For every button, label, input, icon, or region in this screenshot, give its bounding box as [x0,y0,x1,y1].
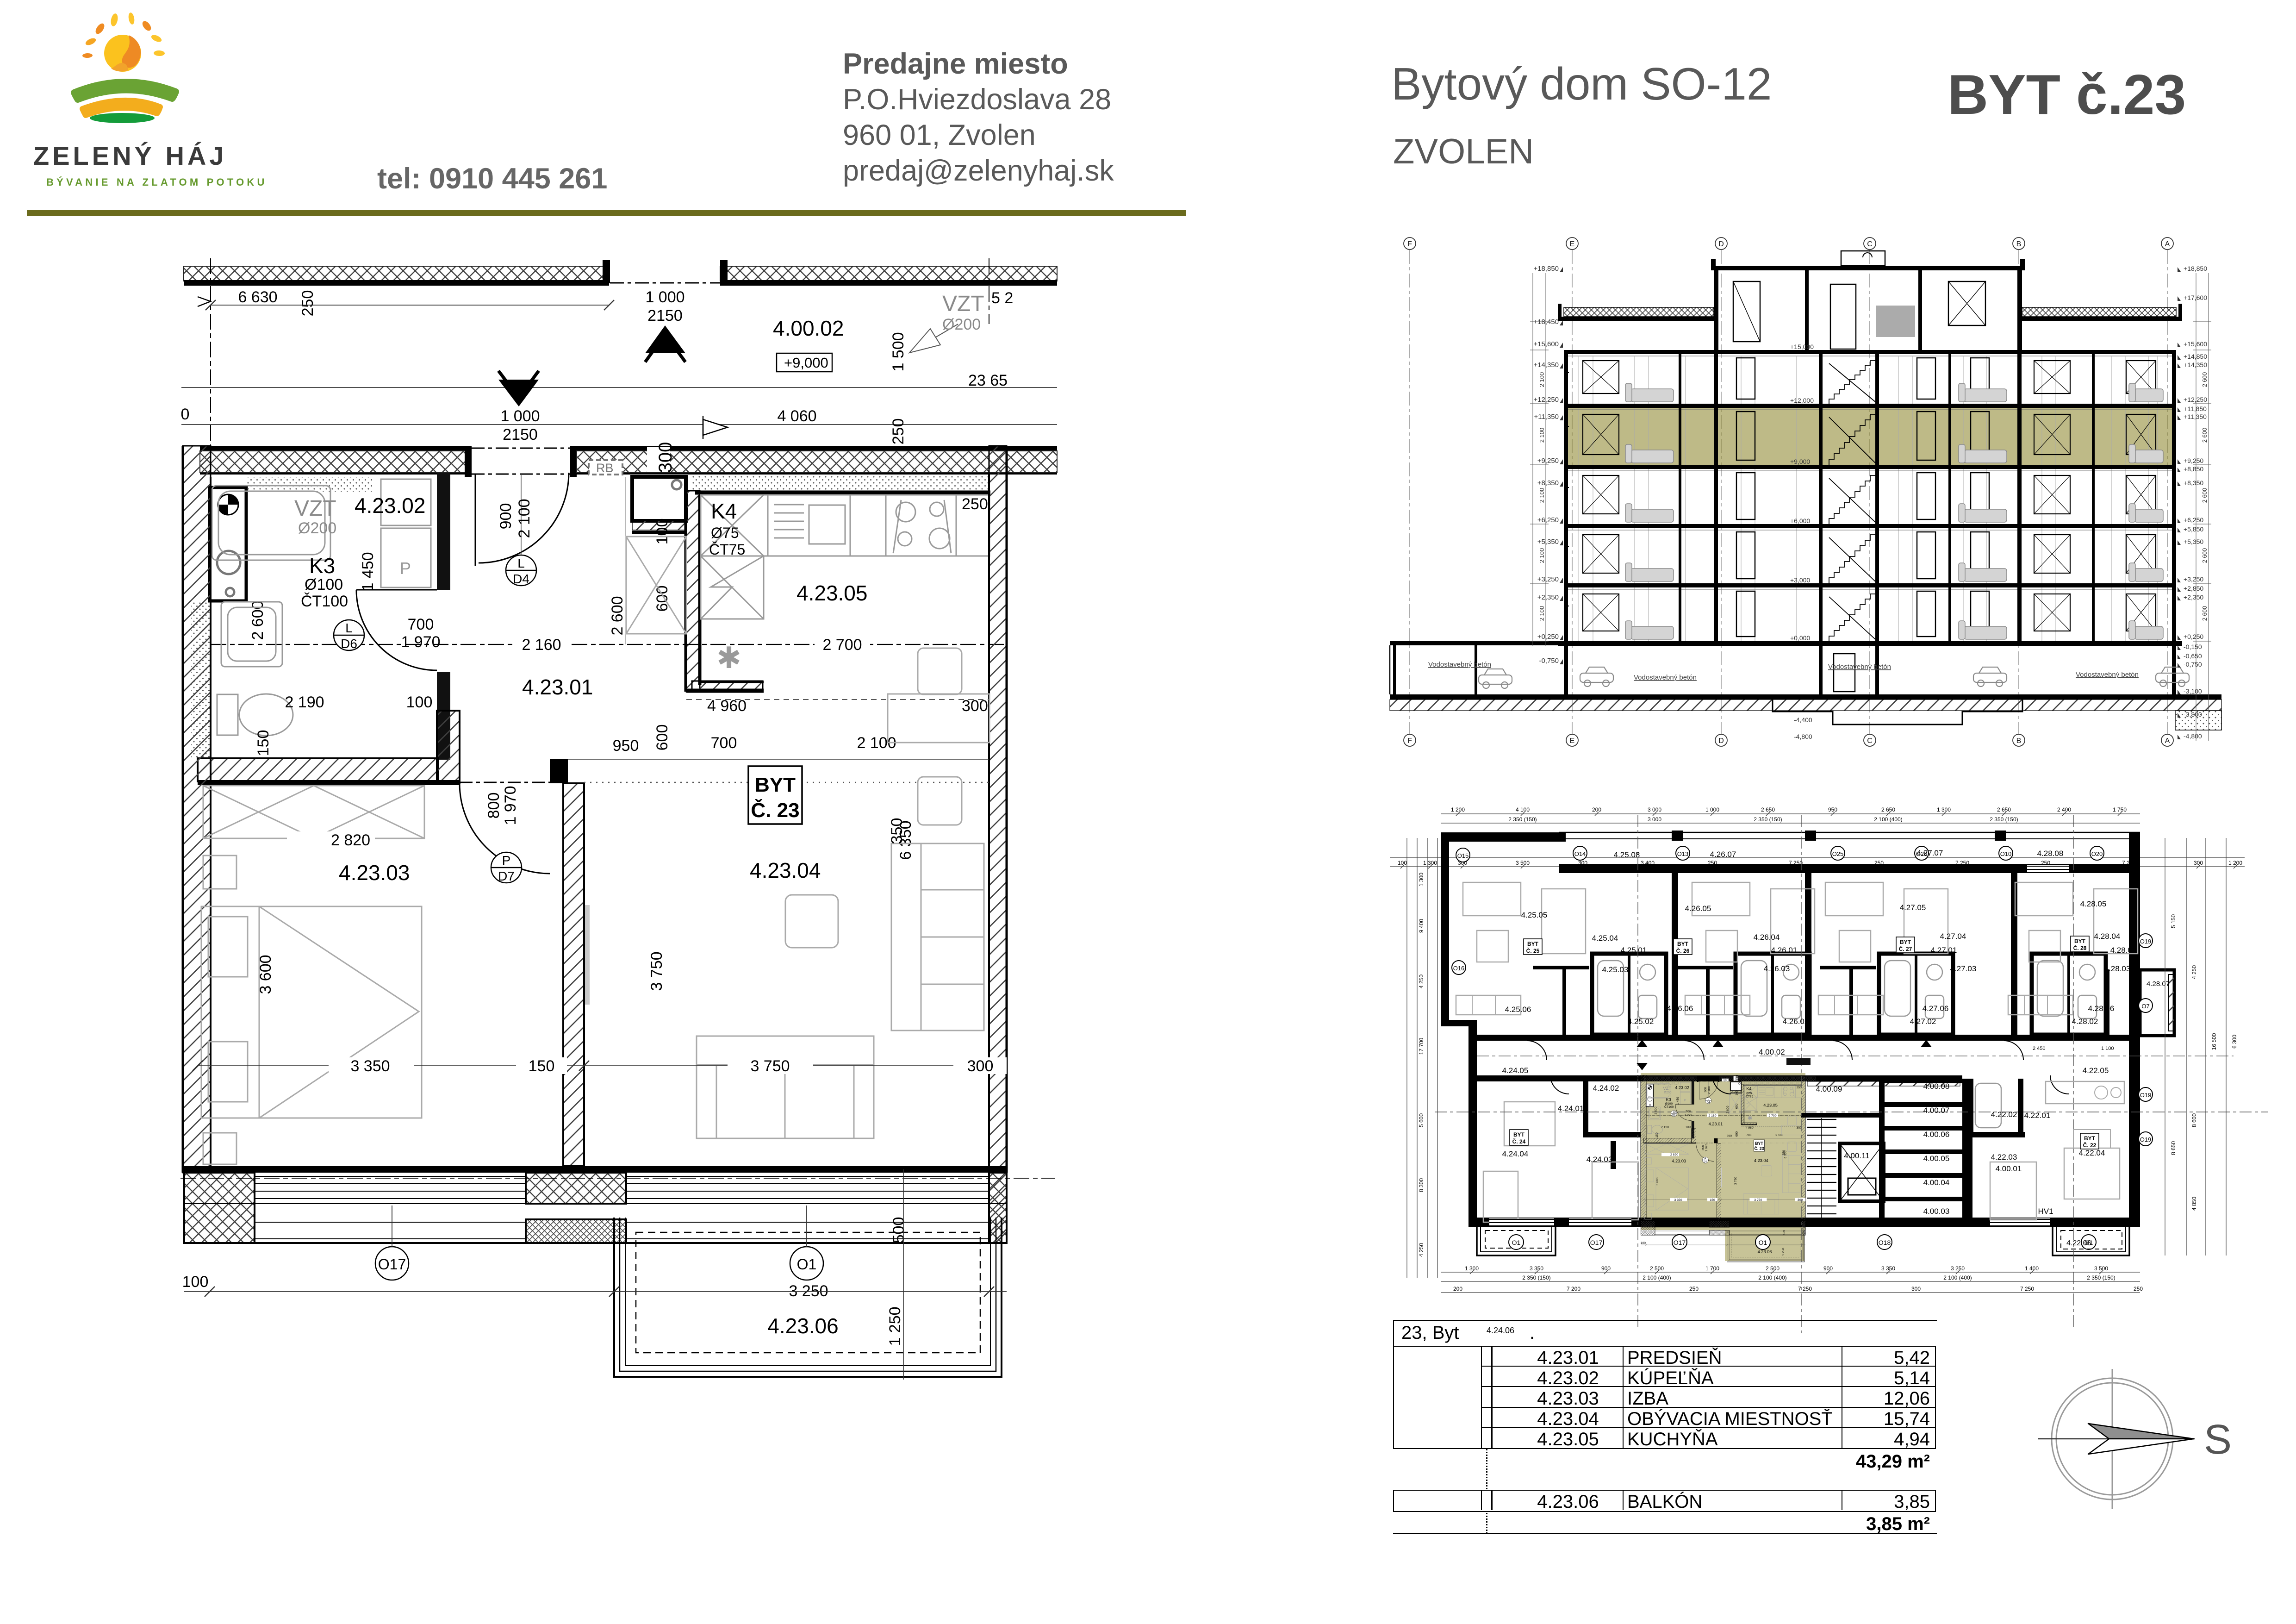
svg-text:2150: 2150 [503,426,538,443]
svg-text:16 500: 16 500 [2211,1033,2217,1050]
svg-text:Č. 23: Č. 23 [751,798,799,822]
svg-text:4.00.06: 4.00.06 [1923,1130,1950,1139]
svg-text:2 700: 2 700 [822,636,862,654]
svg-text:E: E [1570,737,1575,745]
svg-text:4.27.03: 4.27.03 [1950,964,1977,973]
svg-text:4.24.04: 4.24.04 [1502,1149,1529,1158]
svg-text:3 350: 3 350 [1530,1265,1543,1272]
svg-text:950: 950 [1828,806,1837,813]
svg-text:250: 250 [962,495,988,513]
svg-text:4.23.04: 4.23.04 [750,858,821,882]
svg-text:4.22.04: 4.22.04 [2079,1149,2105,1157]
svg-text:1 700: 1 700 [1705,1265,1719,1272]
svg-text:250: 250 [2134,1286,2143,1292]
svg-text:2 100: 2 100 [516,499,533,538]
svg-text:250: 250 [299,290,317,317]
svg-text:O18: O18 [1879,1239,1891,1246]
svg-text:4 060: 4 060 [777,407,816,425]
svg-text:B: B [2016,240,2022,248]
svg-text:D6: D6 [341,637,357,651]
svg-text:+2,350: +2,350 [1537,593,1559,601]
svg-text:1 000: 1 000 [645,288,684,306]
svg-text:8 600: 8 600 [2191,1113,2197,1127]
svg-text:2 450: 2 450 [2033,1046,2046,1051]
svg-text:2 350 (150): 2 350 (150) [1508,816,1537,823]
svg-text:4.26.03: 4.26.03 [1764,964,1790,973]
svg-text:O25: O25 [1832,850,1844,857]
svg-text:700: 700 [711,734,737,752]
svg-text:7 200: 7 200 [1567,1286,1580,1292]
svg-text:4.26.01: 4.26.01 [1771,946,1798,955]
svg-text:2 100: 2 100 [1538,606,1545,621]
svg-text:K3: K3 [309,554,335,578]
svg-text:D7: D7 [498,869,515,883]
svg-text:4.00.11: 4.00.11 [1844,1151,1869,1160]
svg-text:4.00.03: 4.00.03 [1923,1207,1950,1216]
svg-text:23 65: 23 65 [968,372,1008,389]
svg-text:5 600: 5 600 [1418,1113,1425,1127]
svg-text:O17: O17 [1590,1239,1603,1246]
svg-text:7 250: 7 250 [1798,1286,1812,1292]
svg-text:4.28.07: 4.28.07 [2147,980,2170,988]
svg-text:4.24.03: 4.24.03 [1587,1155,1613,1164]
svg-text:F: F [1407,240,1412,248]
svg-text:2 600: 2 600 [2201,606,2208,621]
svg-text:4.28.02: 4.28.02 [2072,1017,2098,1026]
svg-text:1 400: 1 400 [2025,1265,2039,1272]
svg-text:+6,250: +6,250 [2184,516,2203,524]
svg-text:1 450: 1 450 [359,552,377,591]
svg-text:3 250: 3 250 [1951,1265,1965,1272]
svg-text:4.25.03: 4.25.03 [1602,965,1629,974]
svg-text:Č. 28: Č. 28 [2073,944,2087,951]
svg-text:+0,250: +0,250 [1537,633,1559,641]
svg-text:4.27.05: 4.27.05 [1900,903,1926,912]
svg-text:BYT: BYT [2074,938,2086,944]
svg-text:7 250: 7 250 [2020,1286,2034,1292]
svg-text:3 350: 3 350 [350,1057,390,1075]
svg-text:Vodostavebný betón: Vodostavebný betón [2076,671,2139,679]
svg-text:O13: O13 [1677,850,1689,857]
svg-text:0: 0 [181,406,190,423]
svg-text:2150: 2150 [1636,1074,1648,1080]
svg-text:+5,850: +5,850 [2184,525,2203,533]
svg-text:4.00.09: 4.00.09 [1816,1085,1842,1093]
svg-text:O7: O7 [2141,1003,2149,1010]
svg-text:4.23.01: 4.23.01 [522,675,593,699]
svg-text:+11,850: +11,850 [2184,405,2207,412]
svg-text:4.25.05: 4.25.05 [1521,911,1548,919]
svg-text:4.22.02: 4.22.02 [1991,1110,2017,1119]
svg-text:Č. 27: Č. 27 [1899,945,1912,952]
svg-text:C: C [1867,240,1873,248]
svg-text:A: A [2165,737,2170,745]
svg-text:BYT: BYT [755,774,796,796]
svg-text:150: 150 [255,730,272,756]
svg-text:4.28.04: 4.28.04 [2094,932,2121,941]
svg-text:4.23.06: 4.23.06 [767,1314,838,1338]
svg-text:2 650: 2 650 [1881,806,1895,813]
svg-text:1 300: 1 300 [1937,806,1951,813]
svg-text:1 300: 1 300 [1465,1265,1479,1272]
svg-text:ČT100: ČT100 [301,593,348,610]
svg-text:O1: O1 [1512,1239,1521,1246]
svg-text:4.00.07: 4.00.07 [1923,1106,1950,1115]
svg-text:100: 100 [182,1273,209,1291]
svg-text:4 100: 4 100 [1516,806,1530,813]
svg-text:-3,800: -3,800 [2184,711,2202,718]
svg-text:2 650: 2 650 [1997,806,2011,813]
svg-text:4.27.02: 4.27.02 [1910,1017,1936,1026]
svg-text:2 400: 2 400 [2057,806,2071,813]
svg-text:+8,350: +8,350 [1537,479,1559,487]
svg-text:4.00.04: 4.00.04 [1923,1178,1950,1187]
svg-text:2 350 (150): 2 350 (150) [2087,1274,2115,1281]
svg-text:Vodostavebný betón: Vodostavebný betón [1428,661,1491,668]
svg-text:+15,600: +15,600 [2184,340,2207,348]
svg-text:4.28.03: 4.28.03 [2104,964,2131,973]
svg-text:2 100 (400): 2 100 (400) [1758,1274,1786,1281]
svg-text:HV1: HV1 [2038,1207,2053,1216]
svg-text:4.00.08: 4.00.08 [1923,1082,1950,1091]
svg-text:800: 800 [485,793,503,819]
svg-text:O1: O1 [797,1256,817,1273]
svg-text:4.24.01: 4.24.01 [1558,1104,1584,1113]
svg-text:4.28.05: 4.28.05 [2080,899,2107,908]
svg-text:O17: O17 [1674,1239,1686,1246]
svg-text:4.27.07: 4.27.07 [1917,849,1943,857]
svg-text:1 500: 1 500 [890,332,907,371]
svg-text:+0,250: +0,250 [2184,633,2203,640]
svg-text:BYT: BYT [1900,939,1911,945]
svg-text:4.22.05: 4.22.05 [2083,1066,2109,1075]
svg-text:A: A [2165,240,2170,248]
svg-text:+14,850: +14,850 [2184,353,2207,360]
svg-text:B: B [2016,737,2022,745]
svg-text:BYT: BYT [1677,941,1689,947]
svg-text:Č. 22: Č. 22 [2083,1142,2097,1149]
svg-text:RB: RB [596,461,614,475]
svg-text:4 250: 4 250 [2191,965,2197,979]
svg-text:1 200: 1 200 [2228,860,2242,866]
svg-text:4.25.08: 4.25.08 [1614,850,1640,859]
svg-text:4.25.02: 4.25.02 [1628,1017,1654,1026]
svg-text:F: F [1407,737,1412,745]
svg-text:4.00.10: 4.00.10 [1815,1216,1842,1225]
svg-text:3 250: 3 250 [789,1282,828,1300]
svg-text:4.26.04: 4.26.04 [1754,933,1780,942]
svg-text:8 300: 8 300 [1418,1178,1425,1192]
svg-text:+8,350: +8,350 [2184,479,2203,487]
svg-text:1 750: 1 750 [2113,806,2127,813]
svg-text:+8,850: +8,850 [2184,465,2203,473]
svg-text:L: L [517,556,525,570]
svg-text:O19: O19 [2140,1136,2152,1143]
svg-text:250: 250 [890,418,907,445]
svg-text:L: L [345,621,353,635]
svg-text:-4,800: -4,800 [1794,733,1812,740]
svg-text:1 300: 1 300 [1418,873,1425,887]
svg-text:+2,850: +2,850 [2184,585,2203,592]
svg-text:ČT75: ČT75 [709,541,745,558]
svg-text:4.27.04: 4.27.04 [1940,932,1966,941]
svg-text:4.23.05: 4.23.05 [796,581,867,605]
svg-text:4.26.06: 4.26.06 [1667,1004,1693,1013]
svg-text:4 250: 4 250 [1418,974,1425,988]
svg-text:+9,000: +9,000 [1790,458,1810,465]
svg-text:2 100 (400): 2 100 (400) [1943,1274,1972,1281]
svg-text:VZT: VZT [942,292,984,316]
svg-text:BYT: BYT [2084,1135,2096,1142]
svg-text:P: P [502,853,511,868]
svg-text:2 100 (400): 2 100 (400) [1874,816,1902,823]
svg-text:D: D [1718,240,1724,248]
svg-text:+12,250: +12,250 [2184,396,2207,403]
svg-text:3 500: 3 500 [2094,1265,2108,1272]
svg-text:+9,000: +9,000 [784,355,828,371]
svg-text:+14,350: +14,350 [2184,361,2207,369]
svg-text:Ø100: Ø100 [305,576,343,593]
svg-text:100: 100 [406,693,433,711]
svg-text:2 350 (150): 2 350 (150) [1522,1274,1550,1281]
svg-text:100: 100 [653,518,671,545]
svg-text:C: C [1867,737,1873,745]
svg-text:3 350: 3 350 [1881,1265,1895,1272]
svg-text:VZT: VZT [294,496,336,521]
svg-text:-0,750: -0,750 [1539,657,1559,665]
svg-text:E: E [1570,240,1575,248]
svg-text:4.23.03: 4.23.03 [339,861,410,885]
svg-text:2 500: 2 500 [1650,1265,1664,1272]
svg-text:+18,850: +18,850 [1533,265,1559,273]
svg-text:200: 200 [1453,1286,1462,1292]
svg-text:+15,600: +15,600 [1533,340,1559,348]
svg-text:4.28.06: 4.28.06 [2088,1004,2115,1013]
svg-text:4.25.06: 4.25.06 [1505,1005,1531,1014]
svg-text:4 250: 4 250 [1418,1243,1425,1257]
svg-text:600: 600 [653,586,671,612]
svg-text:250: 250 [1689,1286,1699,1292]
svg-text:300: 300 [1911,1286,1921,1292]
svg-text:O20: O20 [2091,850,2103,857]
svg-text:P: P [400,559,411,578]
svg-text:300: 300 [967,1057,994,1075]
svg-text:-4,800: -4,800 [2184,732,2202,740]
svg-text:+12,000: +12,000 [1790,397,1814,404]
svg-text:3 500: 3 500 [1516,860,1530,866]
svg-text:3 750: 3 750 [750,1057,790,1075]
svg-text:+3,000: +3,000 [1790,576,1810,584]
svg-text:4 850: 4 850 [2191,1197,2197,1211]
svg-text:2 100: 2 100 [1538,548,1545,563]
svg-text:900: 900 [497,503,515,530]
svg-text:+0,000: +0,000 [1790,634,1810,642]
svg-text:6 630: 6 630 [238,288,277,306]
svg-text:900: 900 [1601,1265,1611,1272]
svg-text:1 000: 1 000 [1636,1033,1649,1038]
svg-text:4.00.02: 4.00.02 [773,316,844,340]
svg-text:Ø75: Ø75 [711,525,739,541]
svg-text:5 2: 5 2 [991,289,1013,307]
svg-text:4.23.02: 4.23.02 [355,493,425,518]
svg-text:5 150: 5 150 [2170,914,2177,928]
svg-text:2 350 (150): 2 350 (150) [1990,816,2018,823]
svg-text:1 000: 1 000 [1705,806,1719,813]
svg-text:Ø200: Ø200 [298,519,336,537]
svg-text:+6,250: +6,250 [1537,516,1559,524]
svg-text:2 600: 2 600 [609,596,626,635]
svg-text:+5,350: +5,350 [2184,538,2203,545]
svg-text:+3,250: +3,250 [2184,575,2203,583]
svg-text:Vodostavebný betón: Vodostavebný betón [1634,674,1697,681]
svg-text:2 100: 2 100 [1538,428,1545,443]
svg-text:-0,750: -0,750 [2184,661,2202,668]
svg-text:+6,000: +6,000 [1790,517,1810,525]
svg-text:6 300: 6 300 [2231,1035,2238,1049]
svg-text:1 970: 1 970 [502,786,519,825]
svg-text:Č. 25: Č. 25 [1526,947,1540,954]
svg-text:4.26.02: 4.26.02 [1783,1017,1809,1026]
svg-text:+18,850: +18,850 [2184,265,2207,272]
svg-text:4.00.05: 4.00.05 [1923,1154,1950,1163]
svg-text:4.22.01: 4.22.01 [2024,1111,2051,1120]
svg-text:+17,600: +17,600 [2184,294,2207,301]
svg-text:-3,100: -3,100 [2184,687,2202,695]
svg-text:4.24.05: 4.24.05 [1502,1066,1529,1075]
svg-text:2 160: 2 160 [522,636,561,654]
svg-text:+9,250: +9,250 [2184,457,2203,464]
svg-text:2 820: 2 820 [331,831,370,849]
svg-text:1 300: 1 300 [1423,860,1437,866]
svg-text:+9,250: +9,250 [1537,457,1559,465]
svg-text:2 100 (400): 2 100 (400) [1643,1274,1671,1281]
svg-text:2 100: 2 100 [1538,488,1545,503]
svg-text:+3,250: +3,250 [1537,575,1559,583]
svg-text:D4: D4 [513,572,529,586]
svg-text:O19: O19 [2140,938,2152,945]
svg-text:4.27.06: 4.27.06 [1923,1004,1949,1013]
svg-text:3 750: 3 750 [648,951,666,991]
svg-text:4.28.01: 4.28.01 [2110,946,2137,955]
svg-text:✱: ✱ [716,641,741,675]
svg-text:4.26.07: 4.26.07 [1710,850,1736,859]
svg-text:2 600: 2 600 [249,600,267,640]
svg-text:2150: 2150 [647,307,683,325]
svg-text:1 970: 1 970 [401,633,440,651]
svg-text:Vodostavebný betón: Vodostavebný betón [1828,663,1891,671]
svg-text:4.25.04: 4.25.04 [1592,934,1618,943]
svg-text:+14,350: +14,350 [1533,361,1559,369]
svg-text:2 600: 2 600 [2201,548,2208,563]
svg-text:4.28.08: 4.28.08 [2037,849,2064,858]
svg-text:O16: O16 [1453,965,1465,972]
svg-text:K4: K4 [711,499,737,523]
svg-text:2 600: 2 600 [2201,428,2208,443]
svg-text:BYT: BYT [1513,1131,1525,1138]
svg-text:2 350 (150): 2 350 (150) [1754,816,1782,823]
svg-text:300: 300 [655,442,676,473]
svg-text:3 000: 3 000 [1648,806,1661,813]
svg-text:500: 500 [890,1217,908,1243]
svg-text:+5,350: +5,350 [1537,538,1559,546]
svg-text:4.22.06: 4.22.06 [2066,1239,2091,1247]
svg-text:4.26.05: 4.26.05 [1685,904,1711,913]
svg-text:1 000: 1 000 [500,407,540,425]
svg-text:9 400: 9 400 [1418,919,1425,933]
svg-text:3 000: 3 000 [1648,816,1661,823]
svg-text:100: 100 [1398,860,1407,866]
svg-text:2 600: 2 600 [2201,372,2208,387]
svg-text:4 960: 4 960 [707,697,747,715]
svg-text:2 190: 2 190 [285,693,324,711]
svg-text:Č. 26: Č. 26 [1676,947,1690,954]
svg-text:350: 350 [888,818,906,844]
svg-text:700: 700 [408,616,434,633]
svg-text:+11,350: +11,350 [2184,413,2207,420]
svg-text:Č. 24: Č. 24 [1512,1138,1526,1145]
svg-text:2 650: 2 650 [1761,806,1775,813]
svg-text:S: S [2204,1417,2232,1463]
svg-text:300: 300 [2194,860,2203,866]
svg-text:4.22.03: 4.22.03 [1991,1153,2017,1162]
svg-text:BYT: BYT [1527,941,1539,947]
svg-text:150: 150 [529,1057,555,1075]
svg-text:200: 200 [1592,806,1601,813]
svg-text:1 200: 1 200 [1451,806,1465,813]
svg-text:-0,150: -0,150 [2184,643,2202,650]
svg-text:O10: O10 [2000,850,2012,857]
svg-text:O1: O1 [1759,1239,1767,1246]
svg-text:O14: O14 [1574,850,1586,857]
svg-text:Ø200: Ø200 [942,316,981,333]
svg-text:600: 600 [653,725,671,751]
svg-text:4.00.02: 4.00.02 [1759,1048,1785,1056]
svg-text:900: 900 [1823,1265,1833,1272]
svg-text:4.24.02: 4.24.02 [1593,1084,1619,1093]
svg-text:2 100: 2 100 [1538,372,1545,387]
svg-text:4.25.01: 4.25.01 [1621,946,1647,955]
svg-text:950: 950 [613,737,639,755]
svg-text:4.00.01: 4.00.01 [1996,1164,2022,1173]
svg-text:2 600: 2 600 [2201,488,2208,503]
svg-text:-4,400: -4,400 [1794,716,1812,724]
svg-text:8 650: 8 650 [2170,1141,2177,1155]
svg-text:O17: O17 [378,1256,406,1273]
svg-text:+12,250: +12,250 [1533,396,1559,404]
svg-text:17 700: 17 700 [1418,1037,1425,1055]
svg-text:-0,650: -0,650 [2184,652,2202,660]
svg-text:+11,350: +11,350 [1534,413,1559,421]
svg-text:+2,350: +2,350 [2184,593,2203,601]
svg-text:2 500: 2 500 [1766,1265,1780,1272]
svg-text:O15: O15 [1457,852,1469,859]
svg-text:+15,000: +15,000 [1790,343,1814,350]
svg-text:300: 300 [962,697,988,715]
svg-text:4.27.01: 4.27.01 [1931,946,1957,955]
svg-text:D: D [1718,737,1724,745]
svg-text:1 100: 1 100 [2101,1046,2114,1051]
svg-text:O19: O19 [2140,1092,2152,1099]
svg-text:1 250: 1 250 [886,1306,904,1346]
